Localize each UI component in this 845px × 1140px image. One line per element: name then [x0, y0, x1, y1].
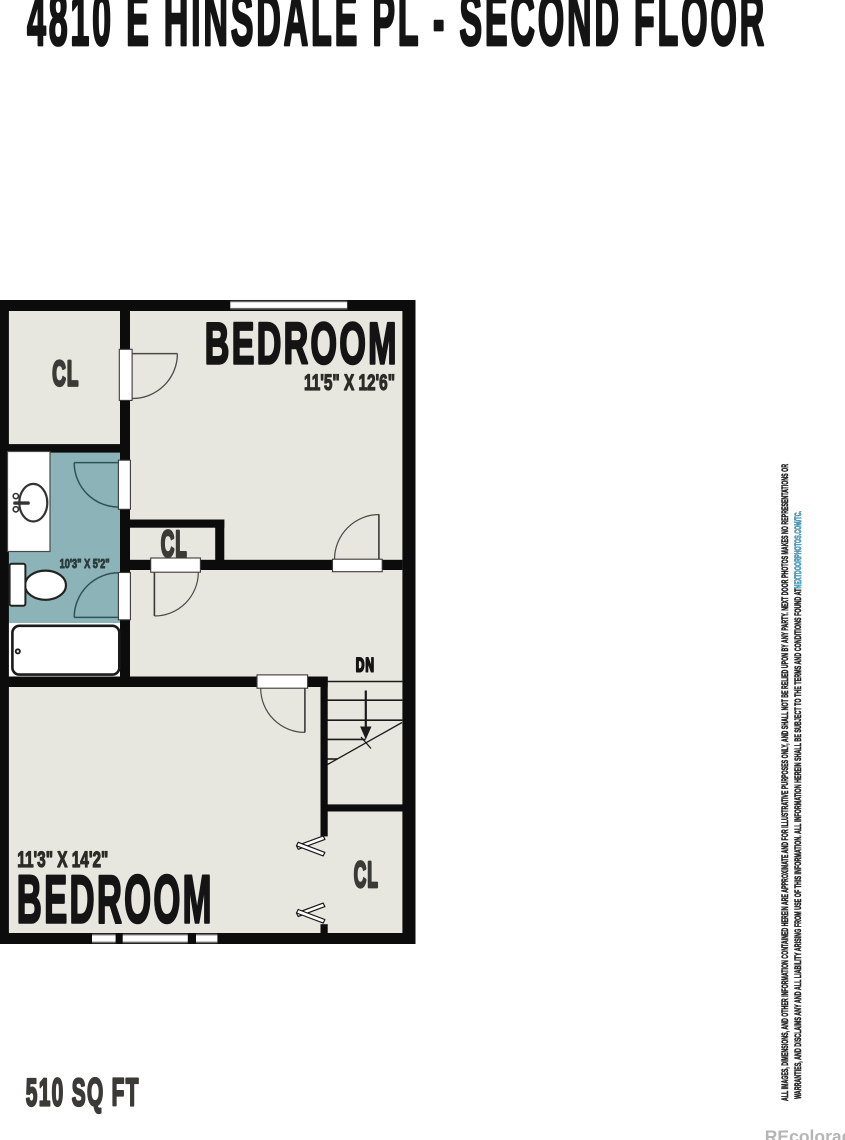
svg-text:CL: CL	[52, 355, 79, 394]
svg-text:DN: DN	[356, 655, 375, 677]
svg-text:510 SQ FT: 510 SQ FT	[26, 1072, 140, 1115]
svg-text:11'5" X 12'6": 11'5" X 12'6"	[304, 370, 395, 395]
svg-text:10'3" X 5'2": 10'3" X 5'2"	[60, 556, 110, 571]
svg-text:CL: CL	[161, 524, 188, 565]
svg-text:WARRANTIES, AND DISCLAIMS ANY: WARRANTIES, AND DISCLAIMS ANY AND ALL LI…	[793, 511, 803, 1099]
svg-text:ALL IMAGES, DIMENSIONS, AND OT: ALL IMAGES, DIMENSIONS, AND OTHER INFORM…	[780, 464, 790, 1101]
svg-text:4810 E HINSDALE PL - SECOND FL: 4810 E HINSDALE PL - SECOND FLOOR	[27, 0, 767, 61]
svg-text:BEDROOM: BEDROOM	[17, 861, 214, 937]
svg-text:BEDROOM: BEDROOM	[205, 312, 399, 377]
svg-text:CL: CL	[354, 854, 379, 895]
svg-text:REcolorado: REcolorado	[765, 1127, 845, 1140]
